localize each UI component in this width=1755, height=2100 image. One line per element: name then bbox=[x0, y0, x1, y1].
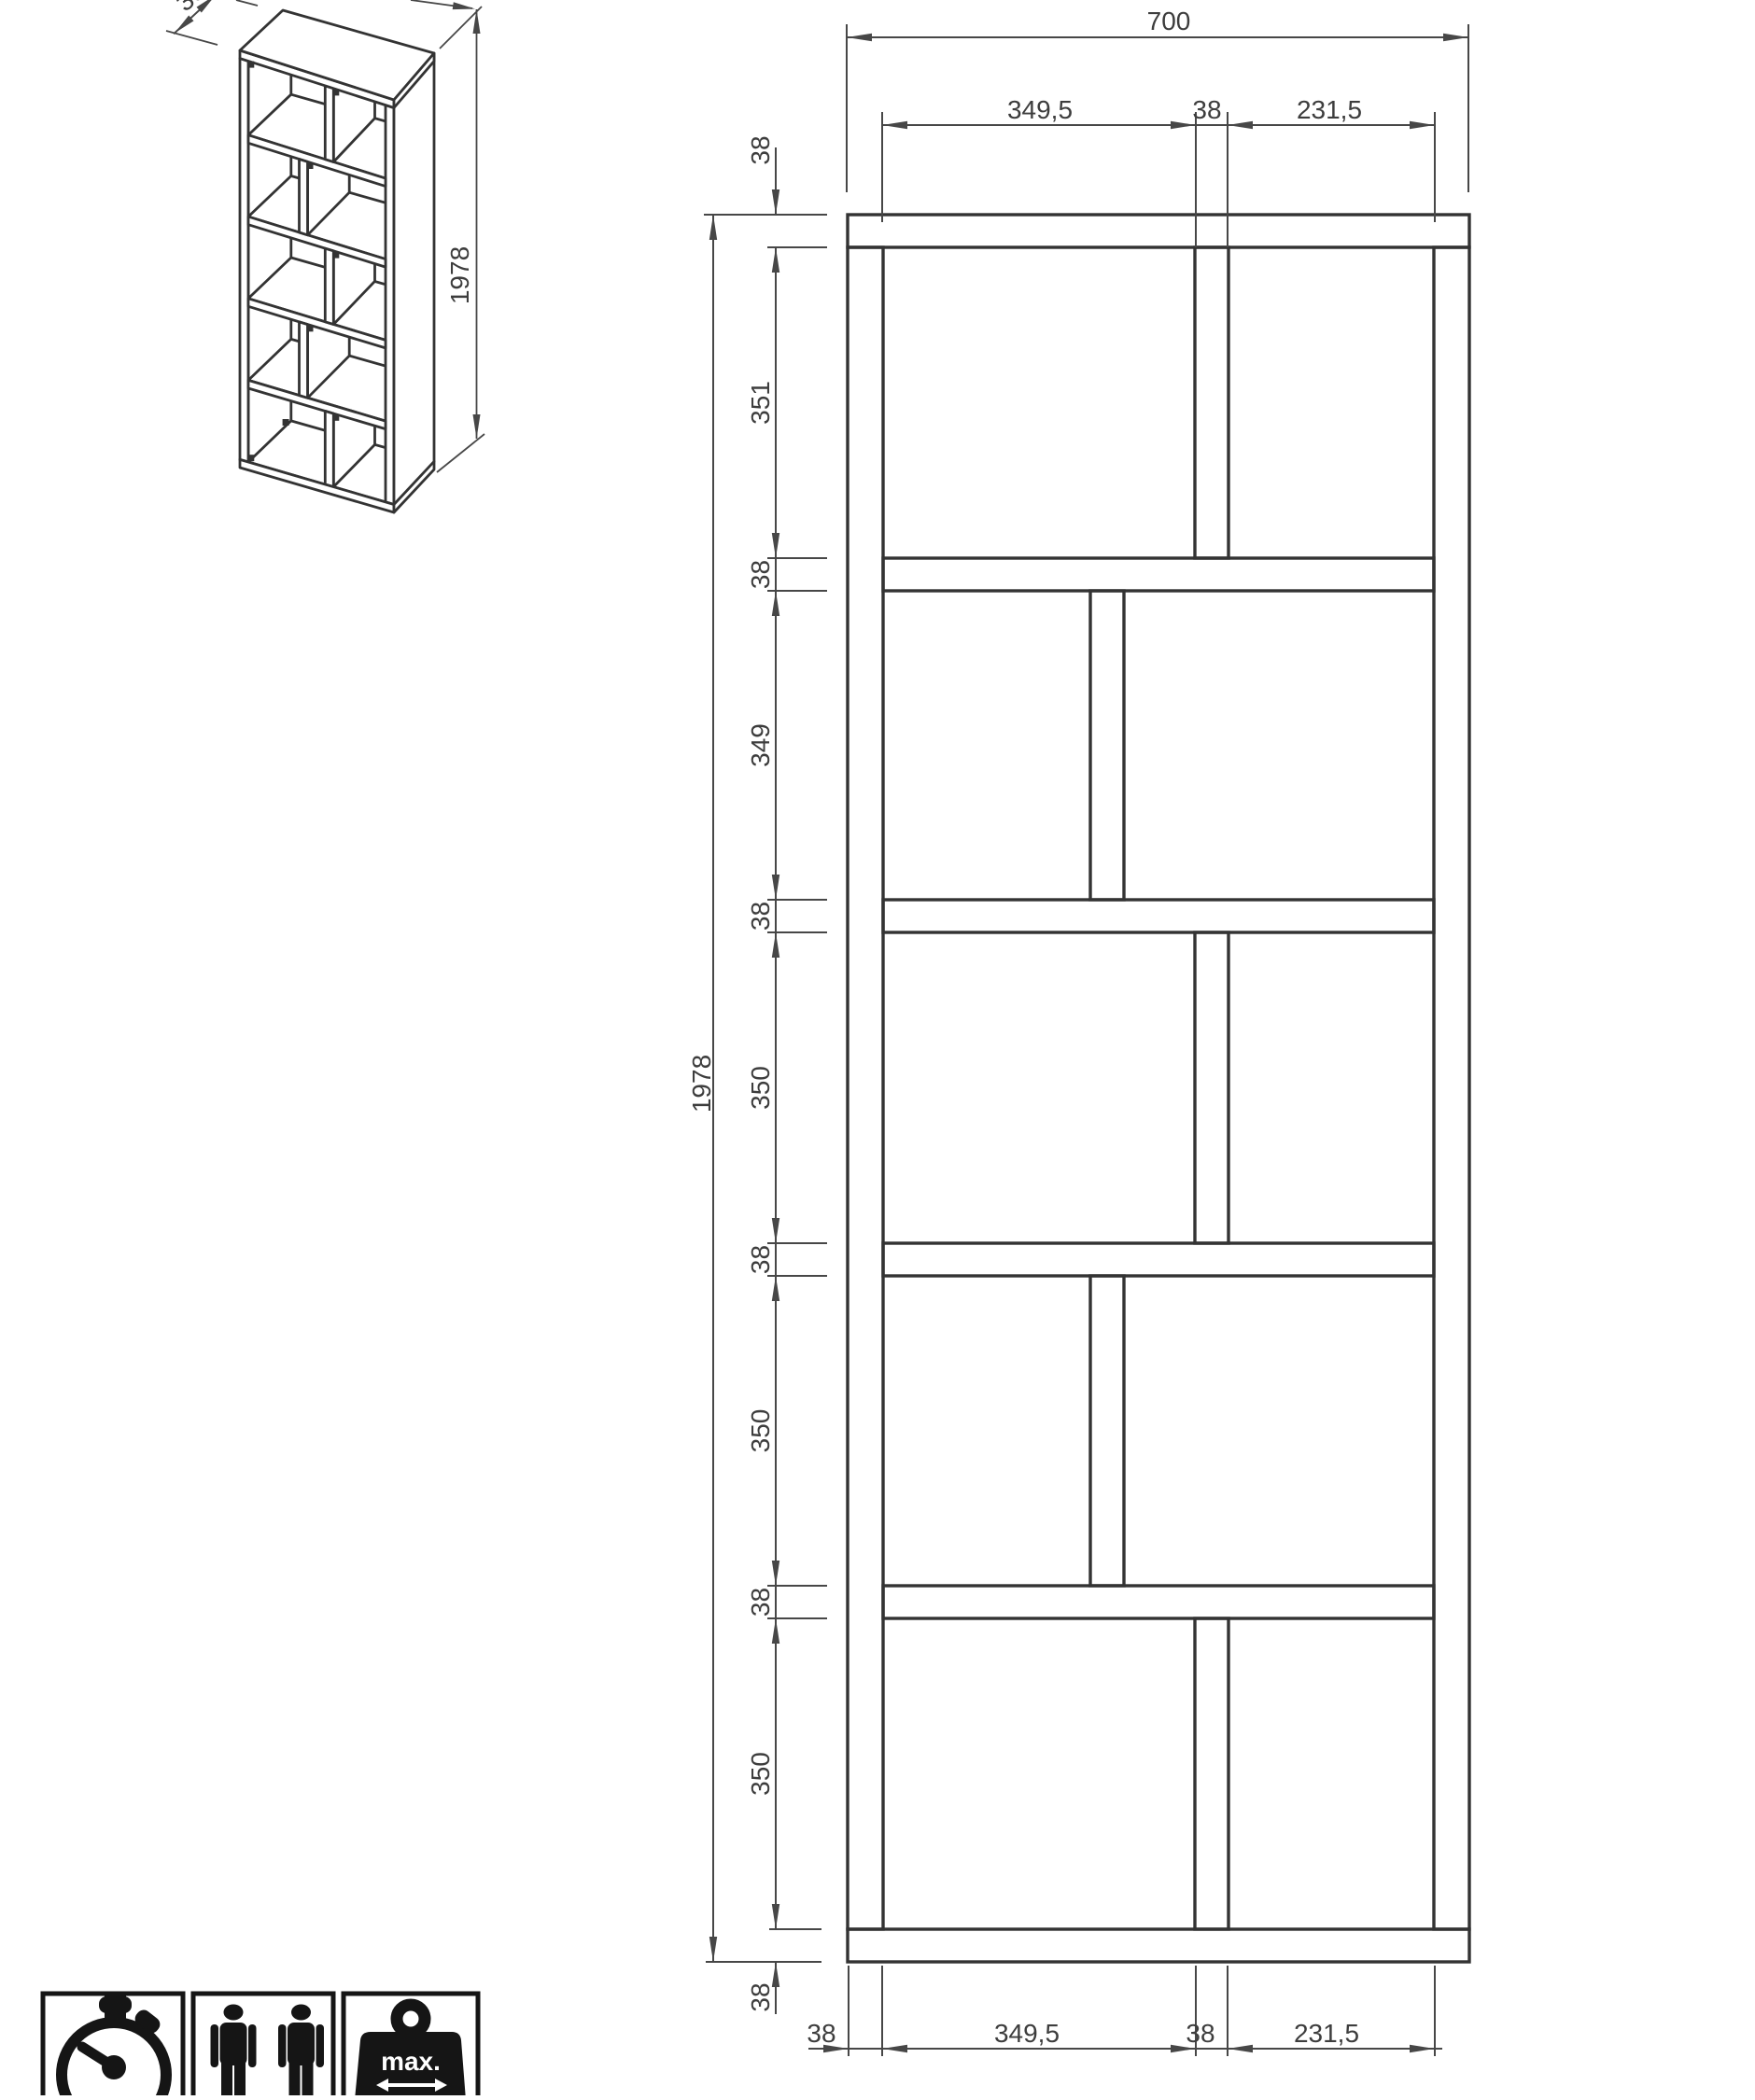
svg-text:231,5: 231,5 bbox=[1294, 2019, 1359, 2048]
svg-text:231,5: 231,5 bbox=[1297, 95, 1362, 124]
svg-text:38: 38 bbox=[746, 902, 775, 931]
svg-text:38: 38 bbox=[807, 2019, 835, 2048]
svg-text:38: 38 bbox=[1186, 2019, 1214, 2048]
svg-text:1978: 1978 bbox=[445, 246, 474, 304]
svg-text:1978: 1978 bbox=[687, 1055, 716, 1113]
svg-text:349: 349 bbox=[746, 723, 775, 767]
svg-text:max.: max. bbox=[381, 2047, 441, 2076]
svg-text:351: 351 bbox=[746, 381, 775, 425]
svg-text:38: 38 bbox=[746, 1245, 775, 1274]
svg-text:349,5: 349,5 bbox=[1007, 95, 1073, 124]
svg-text:350: 350 bbox=[746, 1066, 775, 1110]
svg-text:38: 38 bbox=[746, 135, 775, 164]
svg-text:350: 350 bbox=[746, 1409, 775, 1453]
svg-text:350: 350 bbox=[746, 1752, 775, 1796]
svg-text:38: 38 bbox=[746, 1982, 775, 2011]
svg-text:700: 700 bbox=[1147, 7, 1191, 35]
svg-text:38: 38 bbox=[1192, 95, 1221, 124]
svg-text:38: 38 bbox=[746, 560, 775, 589]
svg-text:38: 38 bbox=[746, 1588, 775, 1617]
svg-text:349,5: 349,5 bbox=[994, 2019, 1060, 2048]
